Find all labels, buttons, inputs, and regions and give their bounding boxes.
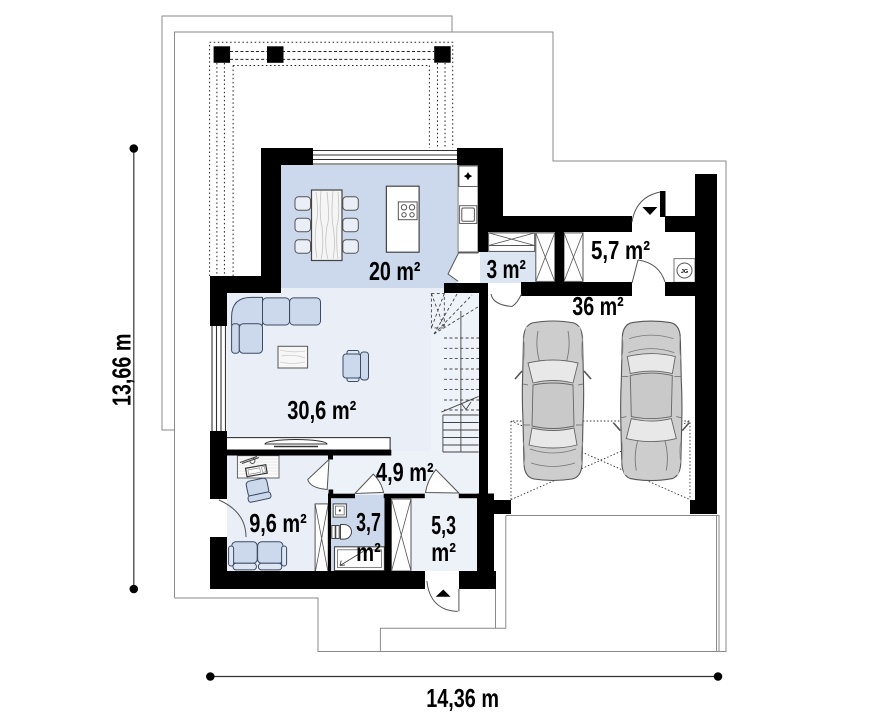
svg-text:14,36 m: 14,36 m [426,683,499,713]
svg-text:3,7: 3,7 [356,507,381,537]
svg-text:13,66 m: 13,66 m [107,334,137,407]
svg-text:3 m²: 3 m² [487,254,527,284]
svg-text:5,3: 5,3 [431,510,456,540]
svg-text:JG: JG [681,269,688,275]
svg-text:4,9 m²: 4,9 m² [376,457,434,487]
svg-text:m²: m² [431,537,456,567]
svg-text:30,6 m²: 30,6 m² [287,395,356,425]
svg-text:m²: m² [356,537,381,567]
svg-text:20 m²: 20 m² [369,256,421,286]
svg-text:9,6 m²: 9,6 m² [249,508,307,538]
svg-text:36 m²: 36 m² [572,291,624,321]
svg-text:5,7 m²: 5,7 m² [591,235,650,265]
